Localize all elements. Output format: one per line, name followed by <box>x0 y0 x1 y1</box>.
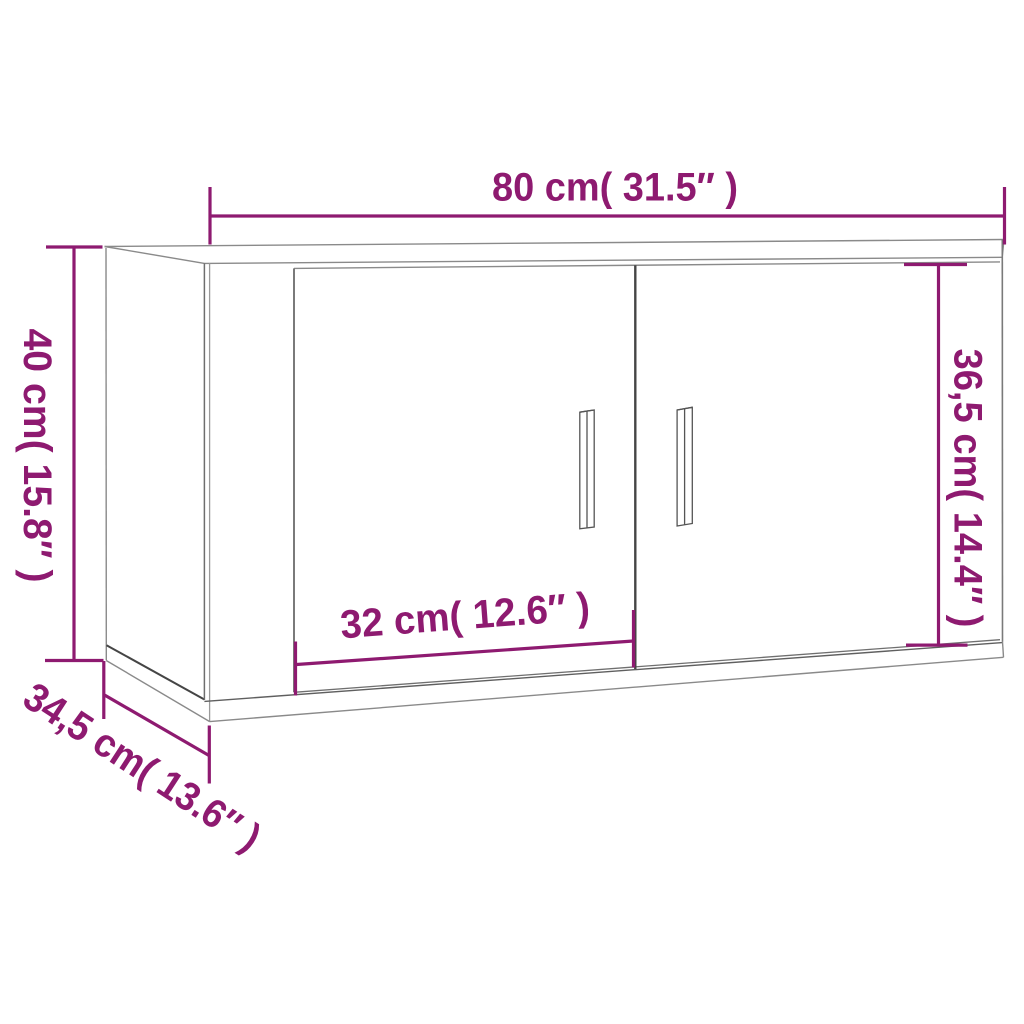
svg-text:80 cm( 31.5″ ): 80 cm( 31.5″ ) <box>492 166 738 210</box>
svg-text:36,5 cm( 14.4″ ): 36,5 cm( 14.4″ ) <box>946 349 990 628</box>
svg-text:40 cm( 15.8″ ): 40 cm( 15.8″ ) <box>15 329 59 583</box>
